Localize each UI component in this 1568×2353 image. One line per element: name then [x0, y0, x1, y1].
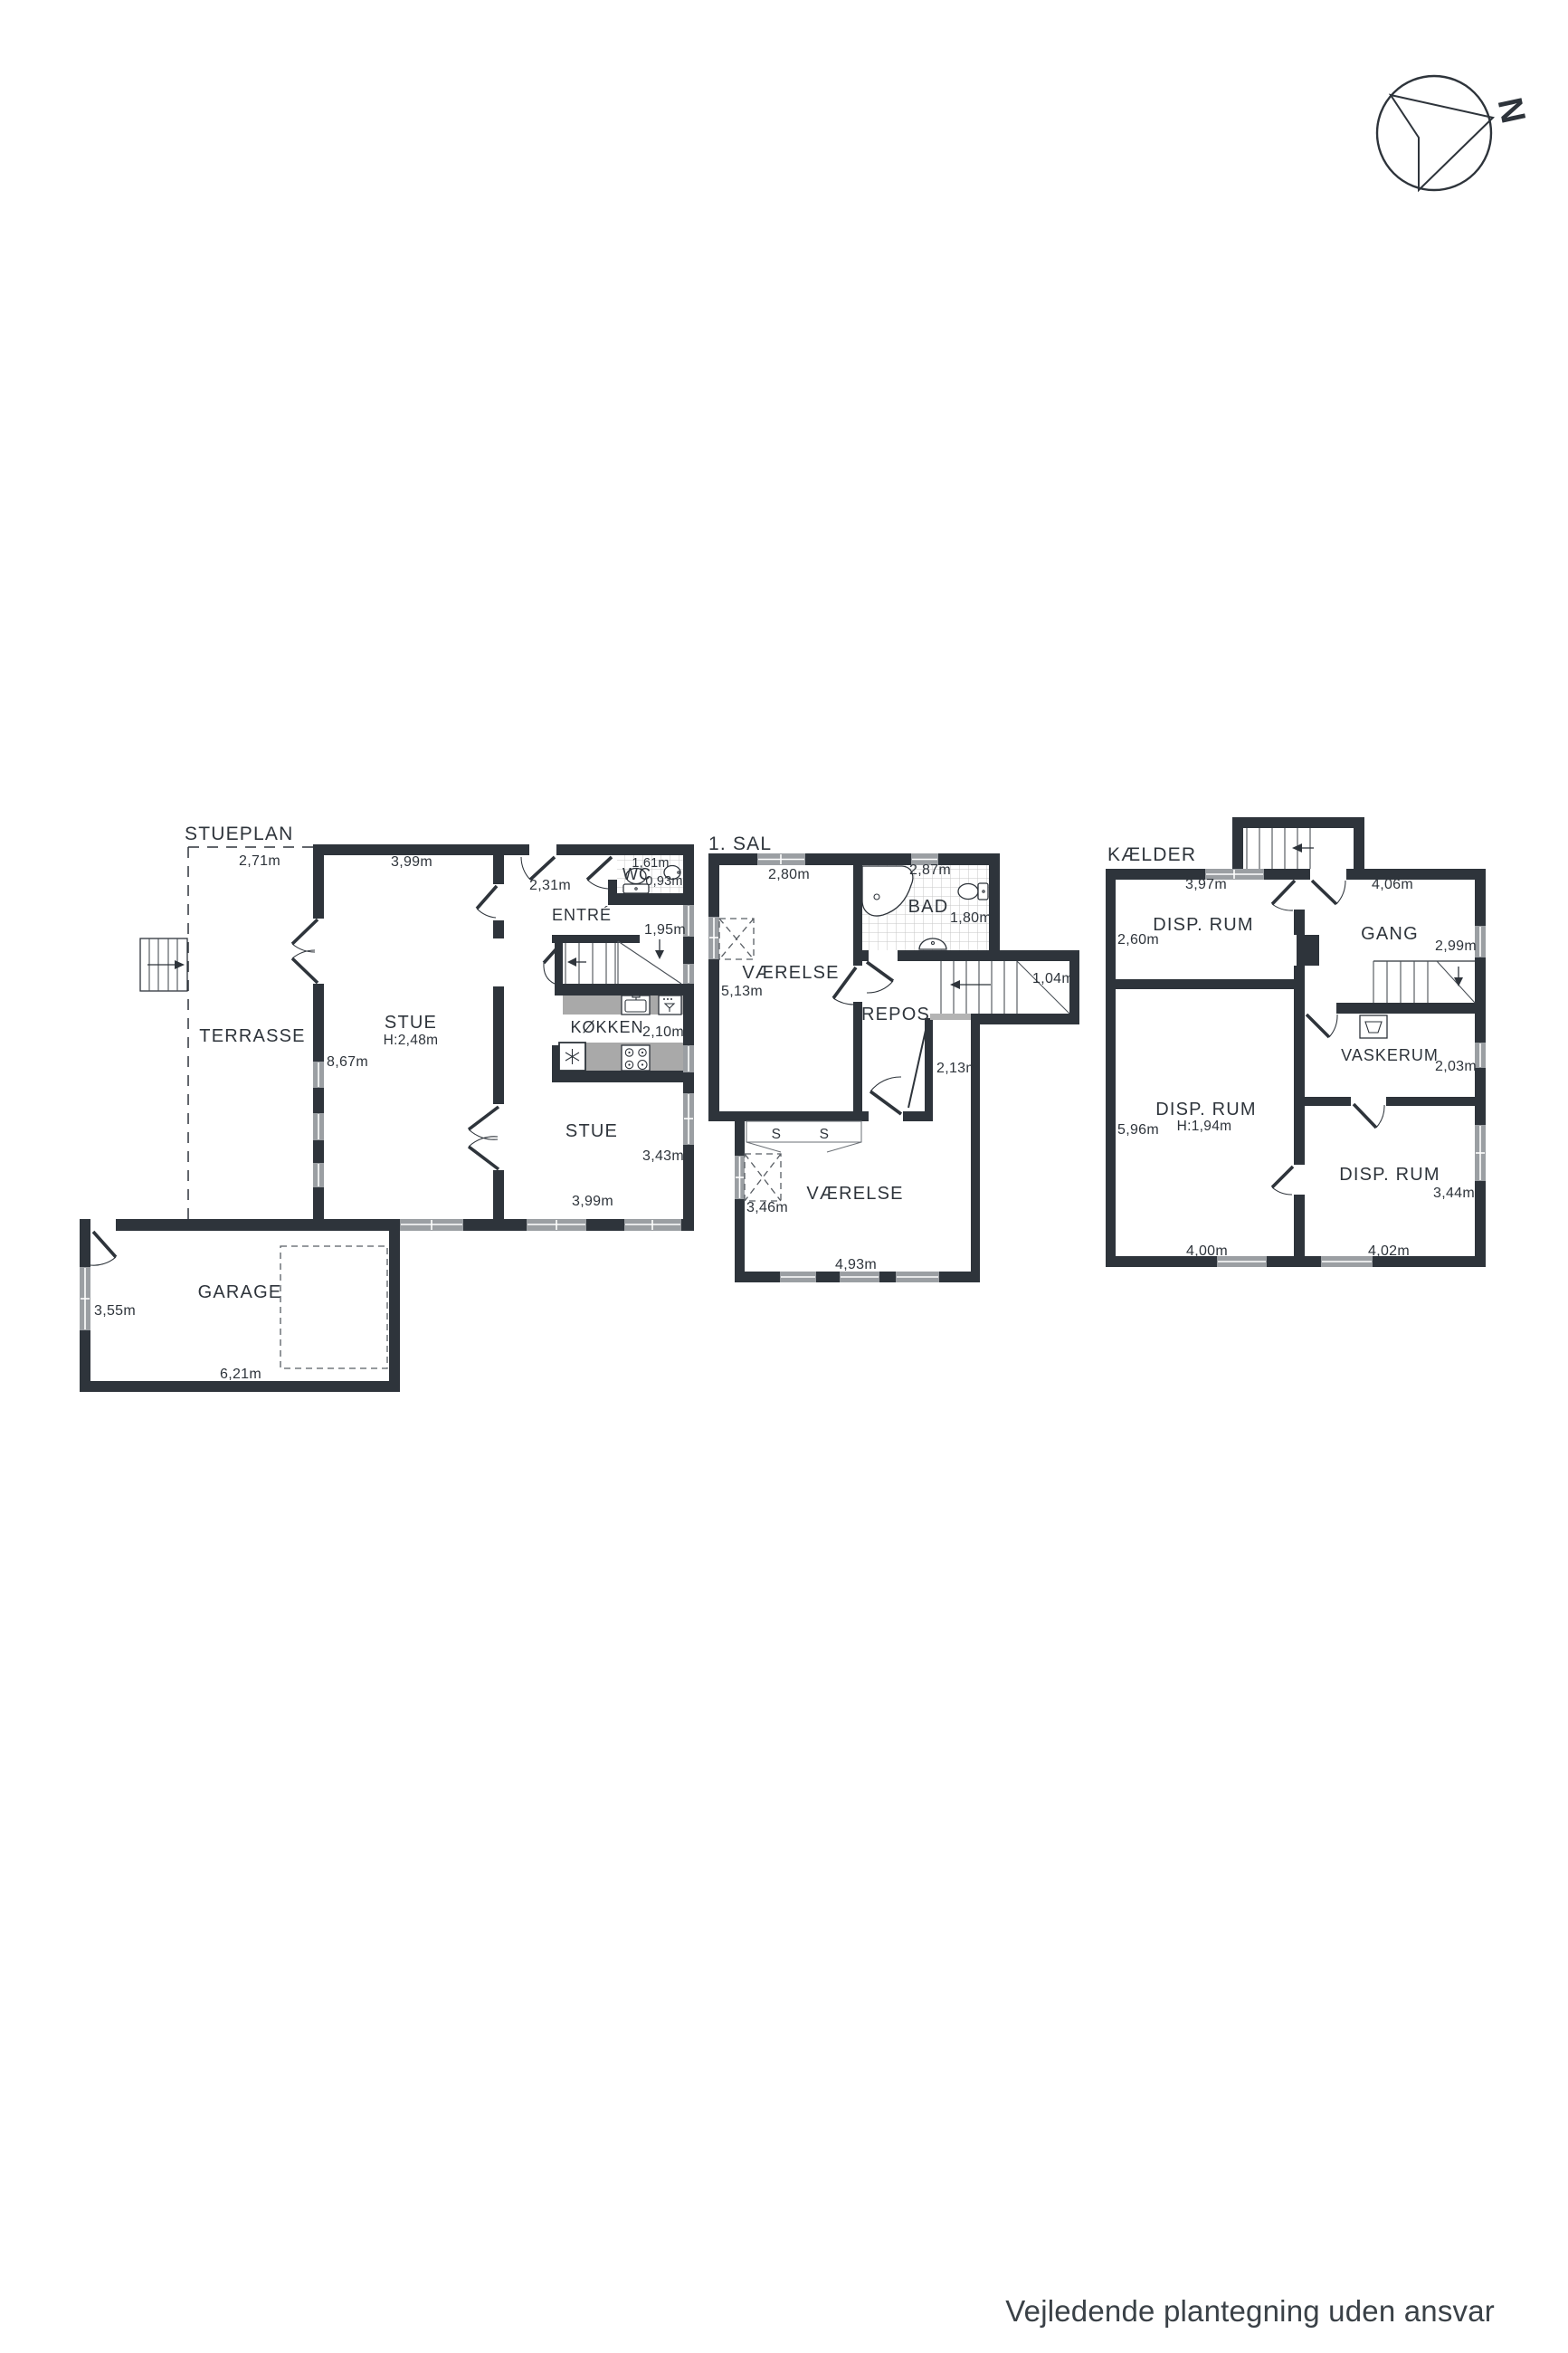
- garage-label: GARAGE: [198, 1282, 282, 1302]
- stue2-bottom-width: 3,99m: [572, 1194, 613, 1209]
- vaerelse-s-bottom: 4,93m: [835, 1257, 877, 1272]
- floorplan-drawing: N: [0, 0, 1568, 2353]
- niche-width: 2,13m: [936, 1061, 978, 1076]
- gang-top: 4,06m: [1372, 877, 1413, 892]
- kokken-depth: 2,10m: [642, 1024, 684, 1040]
- garage-side-height: 3,55m: [94, 1303, 136, 1319]
- basement-title: KÆLDER: [1107, 844, 1196, 865]
- closet-s1: S: [772, 1127, 782, 1142]
- vaskerum-side: 2,03m: [1435, 1059, 1477, 1074]
- stue2-label: STUE: [565, 1121, 618, 1141]
- stue-ceiling-height: H:2,48m: [384, 1033, 439, 1048]
- stove-icon: [622, 1045, 650, 1071]
- vaerelse-nw-label: VÆRELSE: [742, 963, 839, 983]
- repos-label: REPOS: [861, 1005, 930, 1024]
- entre-label: ENTRÉ: [552, 906, 612, 924]
- disp-se-side: 3,44m: [1433, 1186, 1475, 1201]
- laundry-sink-icon: [1360, 1015, 1387, 1038]
- disclaimer-text: Vejledende plantegning uden ansvar: [1005, 2294, 1495, 2328]
- entre-right-depth: 1,95m: [644, 922, 686, 938]
- vaskerum-label: VASKERUM: [1341, 1046, 1439, 1064]
- bad-top: 2,87m: [909, 862, 951, 878]
- garage-bottom-width: 6,21m: [220, 1367, 261, 1382]
- stue2-right-height: 3,43m: [642, 1148, 684, 1164]
- floorplan-page: N: [0, 0, 1568, 2353]
- bad-label: BAD: [908, 897, 949, 917]
- gang-label: GANG: [1361, 924, 1419, 944]
- bad-toilet-icon: [958, 883, 988, 900]
- disp-w-bottom: 4,00m: [1186, 1243, 1228, 1259]
- bad-side: 1,80m: [950, 910, 992, 926]
- disp-se-label: DISP. RUM: [1339, 1165, 1440, 1185]
- disp-w-side: 5,96m: [1117, 1122, 1159, 1138]
- dishwasher-icon: [659, 995, 681, 1015]
- vaerelse-s-side: 3,46m: [746, 1200, 788, 1215]
- ground-floor-title: STUEPLAN: [185, 824, 293, 844]
- stue-top-width: 3,99m: [391, 854, 432, 870]
- vaerelse-nw-top: 2,80m: [768, 867, 810, 882]
- page-background: [0, 0, 1568, 2353]
- stue-label: STUE: [385, 1013, 437, 1033]
- wc-depth: 0,93m: [645, 874, 682, 889]
- terrasse-label: TERRASSE: [199, 1026, 305, 1046]
- kokken-label: KØKKEN: [570, 1018, 643, 1036]
- disp-w-label: DISP. RUM: [1155, 1100, 1257, 1119]
- vaerelse-nw-side: 5,13m: [721, 984, 763, 999]
- closet-s2: S: [820, 1127, 830, 1142]
- disp-nw-top: 3,97m: [1185, 877, 1227, 892]
- disp-nw-side: 2,60m: [1117, 932, 1159, 948]
- disp-w-height: H:1,94m: [1177, 1119, 1232, 1134]
- terrasse-width: 2,71m: [239, 853, 280, 869]
- vaerelse-s-label: VÆRELSE: [806, 1184, 903, 1204]
- first-floor-title: 1. SAL: [708, 834, 772, 854]
- stue-side-height: 8,67m: [327, 1054, 368, 1070]
- gang-side: 2,99m: [1435, 938, 1477, 954]
- entre-width: 2,31m: [529, 878, 571, 893]
- disp-nw-label: DISP. RUM: [1153, 915, 1254, 935]
- disp-se-bottom: 4,02m: [1368, 1243, 1410, 1259]
- stair-width: 1,04m: [1032, 971, 1074, 986]
- kitchen-sink-icon: [622, 994, 650, 1015]
- fridge-icon: [559, 1043, 585, 1071]
